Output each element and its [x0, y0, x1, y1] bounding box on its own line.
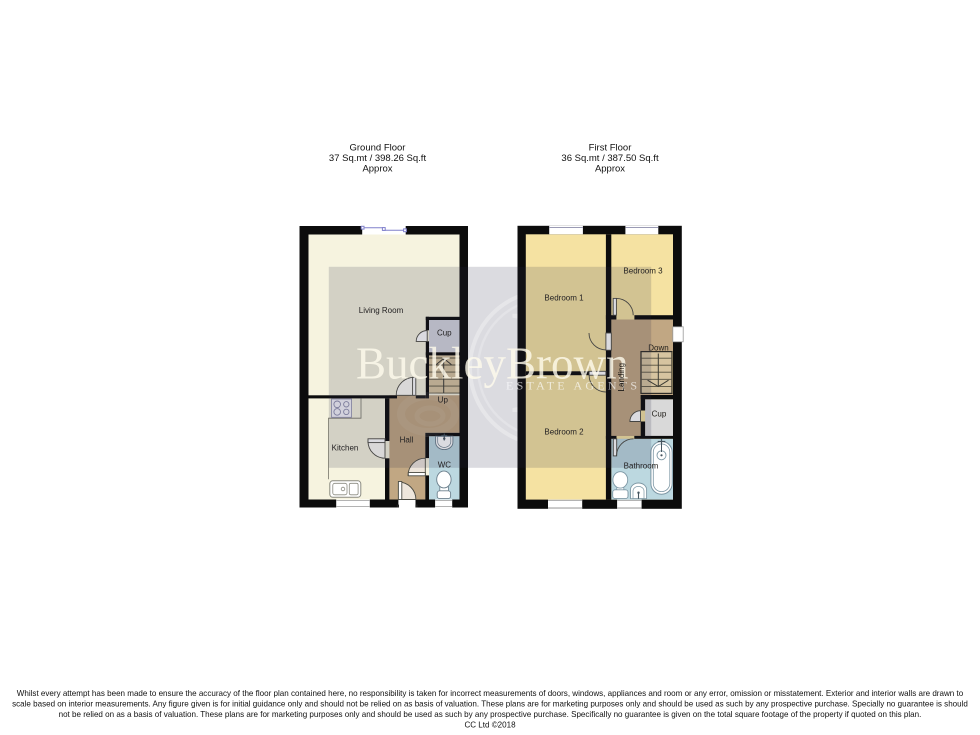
svg-text:Whilst every attempt has been: Whilst every attempt has been made to en… — [17, 689, 964, 698]
svg-text:Approx: Approx — [362, 163, 392, 174]
svg-text:CC Ltd ©2018: CC Ltd ©2018 — [464, 720, 516, 729]
svg-text:Ground Floor: Ground Floor — [350, 143, 406, 154]
svg-text:First Floor: First Floor — [589, 143, 632, 154]
svg-text:Approx: Approx — [595, 163, 625, 174]
svg-text:not be relied on as a basis of: not be relied on as a basis of valuation… — [59, 710, 922, 719]
svg-text:Cup: Cup — [652, 409, 667, 418]
svg-text:Landing: Landing — [617, 363, 626, 391]
svg-text:scale based on interior measur: scale based on interior measurements. An… — [12, 699, 968, 708]
svg-text:Down: Down — [648, 343, 668, 352]
